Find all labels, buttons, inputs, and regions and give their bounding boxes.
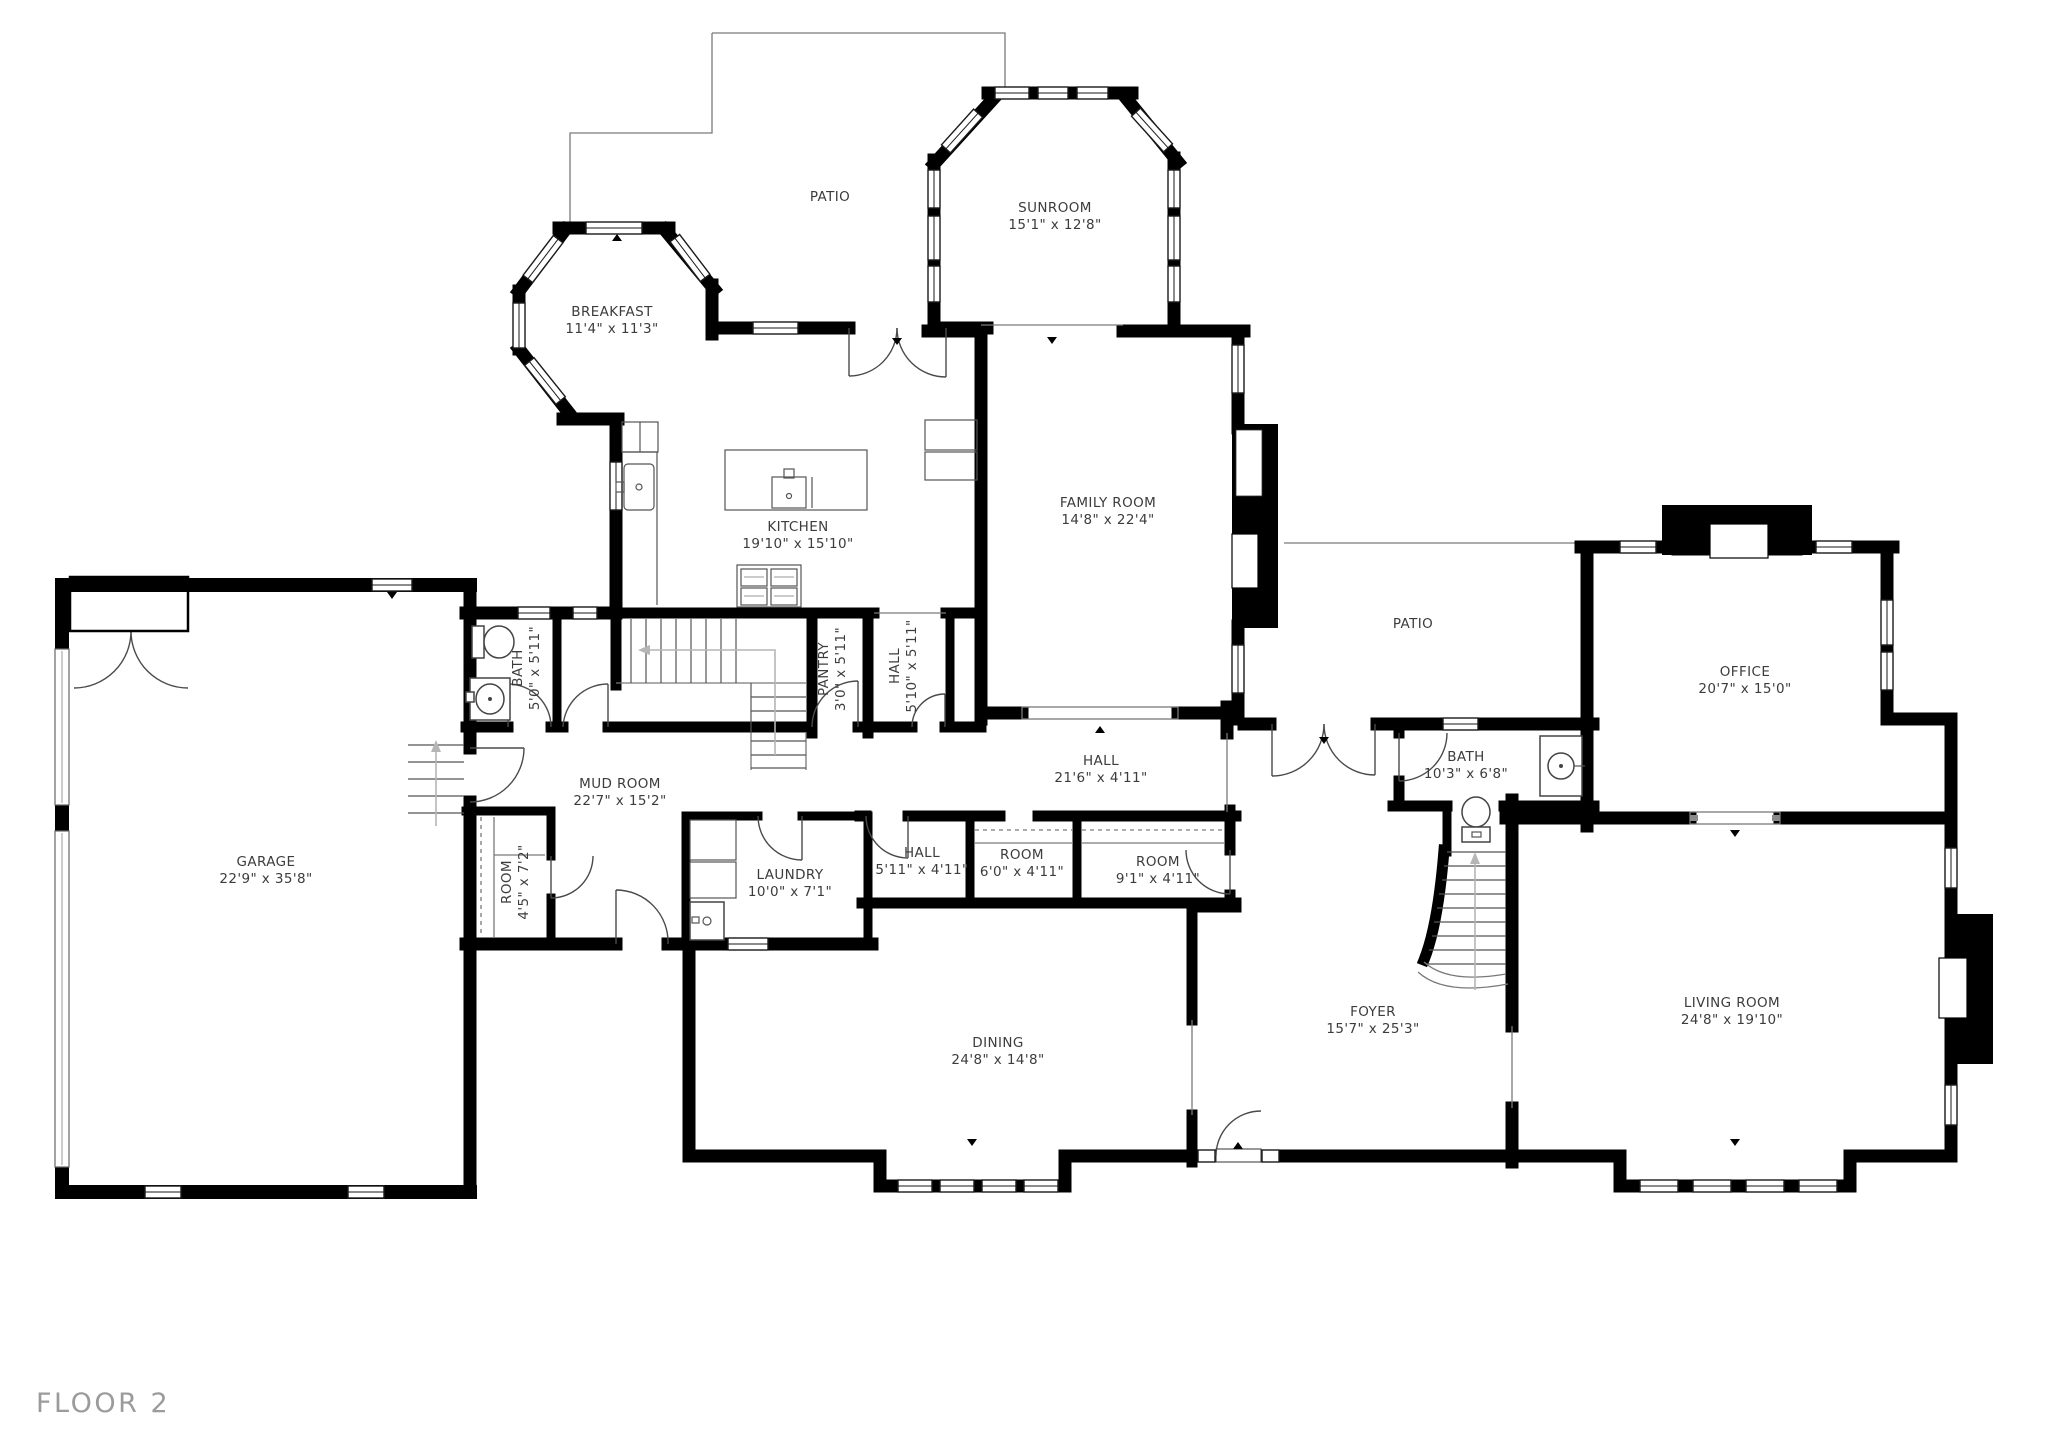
room-dims-room-small: 4'5" x 7'2" xyxy=(516,844,532,919)
family-room-fireplace xyxy=(1232,424,1278,628)
room-label-pantry: PANTRY xyxy=(816,642,832,696)
room-dims-family-room: 14'8" x 22'4" xyxy=(1061,512,1154,528)
laundry-fixtures xyxy=(690,820,736,940)
room-dims-dining: 24'8" x 14'8" xyxy=(951,1052,1044,1068)
office-fireplace xyxy=(1662,505,1812,558)
room-label-group-hall-small: HALL 5'10" x 5'11" xyxy=(887,619,920,712)
room-dims-hall-closet: 5'11" x 4'11" xyxy=(875,862,968,878)
room-label-group-room-small: ROOM 4'5" x 7'2" xyxy=(499,844,532,919)
main-staircase xyxy=(616,619,806,770)
room-dims-sunroom: 15'1" x 12'8" xyxy=(1008,217,1101,233)
room-dims-office: 20'7" x 15'0" xyxy=(1698,681,1791,697)
room-dims-laundry: 10'0" x 7'1" xyxy=(748,884,832,900)
room-label-bath-right: BATH xyxy=(1447,749,1484,765)
room-label-bath-small: BATH xyxy=(510,649,526,686)
room-label-kitchen: KITCHEN xyxy=(767,519,828,535)
room-label-dining: DINING xyxy=(972,1035,1023,1051)
room-dims-breakfast: 11'4" x 11'3" xyxy=(565,321,658,337)
room-dims-bath-right: 10'3" x 6'8" xyxy=(1424,766,1508,782)
closet-rods xyxy=(481,817,1225,938)
room-label-sunroom: SUNROOM xyxy=(1018,200,1092,216)
room-label-hall-closet: HALL xyxy=(904,845,940,861)
patio-outlines xyxy=(570,33,1581,543)
room-label-garage: GARAGE xyxy=(237,854,296,870)
cased-openings xyxy=(874,325,1780,1115)
room-dims-mud-room: 22'7" x 15'2" xyxy=(573,793,666,809)
floor-plan-svg: PATIO SUNROOM 15'1" x 12'8" BREAKFAST 11… xyxy=(0,0,2048,1448)
kitchen-island xyxy=(725,450,867,510)
room-label-foyer: FOYER xyxy=(1350,1004,1396,1020)
room-label-room-9: ROOM xyxy=(1136,854,1180,870)
room-label-office: OFFICE xyxy=(1720,664,1771,680)
room-label-group-pantry: PANTRY 3'0" x 5'11" xyxy=(816,627,849,711)
room-dims-kitchen: 19'10" x 15'10" xyxy=(742,536,853,552)
walls-layer xyxy=(62,93,1951,1192)
fireplaces xyxy=(1232,424,1993,1064)
room-dims-hall-small: 5'10" x 5'11" xyxy=(904,619,920,712)
room-dims-pantry: 3'0" x 5'11" xyxy=(833,627,849,711)
room-label-breakfast: BREAKFAST xyxy=(571,304,653,320)
room-dims-living-room: 24'8" x 19'10" xyxy=(1681,1012,1783,1028)
floor-plan-page: PATIO SUNROOM 15'1" x 12'8" BREAKFAST 11… xyxy=(0,0,2048,1448)
garage-steps xyxy=(408,740,464,826)
room-dims-room-6: 6'0" x 4'11" xyxy=(980,864,1064,880)
room-label-hall-main: HALL xyxy=(1083,753,1119,769)
kitchen-fridge xyxy=(925,420,977,480)
kitchen-stove xyxy=(737,565,801,607)
living-room-fireplace xyxy=(1939,914,1993,1064)
room-label-patio-top: PATIO xyxy=(810,189,850,205)
room-label-laundry: LAUNDRY xyxy=(756,867,823,883)
room-label-room-small: ROOM xyxy=(499,860,515,904)
room-dims-garage: 22'9" x 35'8" xyxy=(219,871,312,887)
room-label-hall-small: HALL xyxy=(887,648,903,684)
windows xyxy=(145,87,1957,1198)
room-label-family-room: FAMILY ROOM xyxy=(1060,495,1156,511)
room-label-group-bath-small: BATH 5'0" x 5'11" xyxy=(510,626,543,710)
room-dims-room-9: 9'1" x 4'11" xyxy=(1116,871,1200,887)
room-label-room-6: ROOM xyxy=(1000,847,1044,863)
flow-arrows xyxy=(387,234,1740,1149)
room-dims-bath-small: 5'0" x 5'11" xyxy=(527,626,543,710)
foyer-curved-staircase xyxy=(1418,850,1508,990)
floor-number-label: FLOOR 2 xyxy=(36,1388,170,1419)
room-label-mud-room: MUD ROOM xyxy=(579,776,661,792)
room-label-living-room: LIVING ROOM xyxy=(1684,995,1780,1011)
room-dims-foyer: 15'7" x 25'3" xyxy=(1326,1021,1419,1037)
room-dims-hall-main: 21'6" x 4'11" xyxy=(1054,770,1147,786)
room-labels: PATIO SUNROOM 15'1" x 12'8" BREAKFAST 11… xyxy=(219,189,1791,1068)
garage-door-bands xyxy=(55,649,69,1167)
room-label-patio-right: PATIO xyxy=(1393,616,1433,632)
